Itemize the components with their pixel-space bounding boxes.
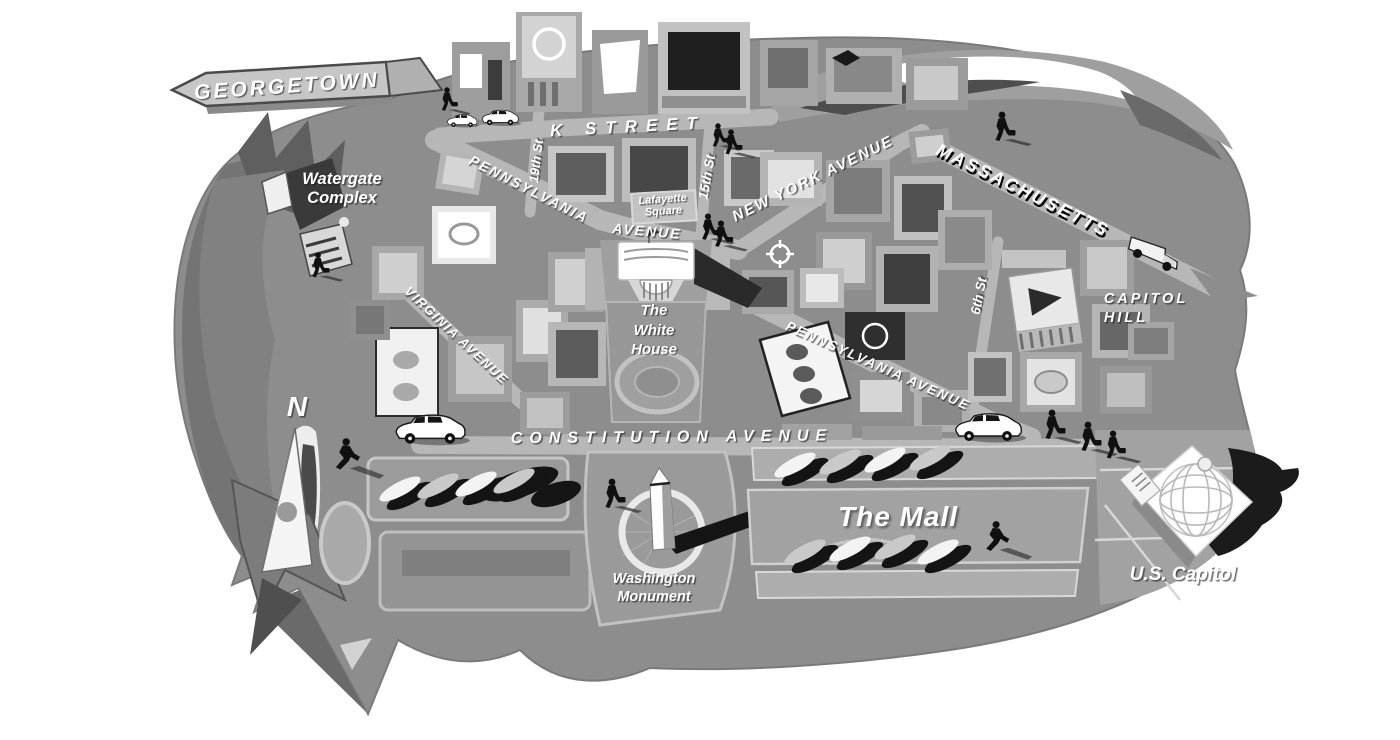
watergate-complex-label: Watergate Complex bbox=[302, 170, 381, 208]
capitol-hill-label: CAPITOL HILL bbox=[1104, 290, 1188, 328]
map-illustration bbox=[0, 0, 1400, 740]
triangle-building bbox=[1008, 268, 1082, 352]
white-house-label: The White House bbox=[631, 301, 677, 360]
compass-north-label: N bbox=[287, 391, 307, 423]
dc-illustrated-map: GEORGETOWN Watergate Complex K STREET 19… bbox=[0, 0, 1400, 740]
constitution-avenue-label: CONSTITUTION AVENUE bbox=[511, 427, 833, 448]
the-mall-label: The Mall bbox=[838, 501, 958, 533]
west-mall-panels bbox=[368, 458, 590, 610]
washington-monument-label: Washington Monument bbox=[613, 570, 696, 606]
lafayette-square-label: Lafayette Square bbox=[638, 193, 688, 219]
us-capitol-label: U.S. Capitol bbox=[1130, 564, 1237, 586]
